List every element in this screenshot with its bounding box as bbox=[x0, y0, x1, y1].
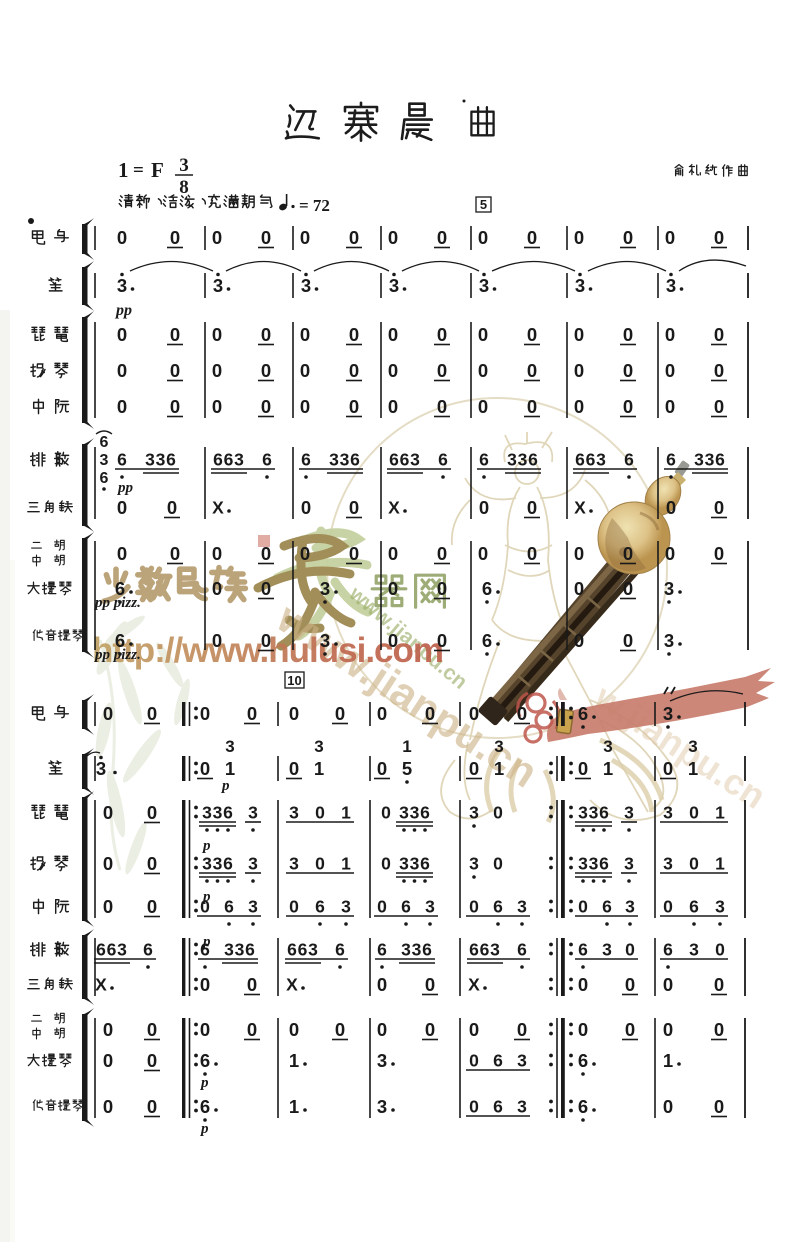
svg-text:1: 1 bbox=[225, 758, 235, 779]
svg-text:0: 0 bbox=[349, 543, 359, 564]
svg-text:0: 0 bbox=[437, 630, 447, 651]
svg-text:6: 6 bbox=[599, 853, 609, 873]
svg-text:6: 6 bbox=[575, 449, 585, 469]
svg-text:0: 0 bbox=[623, 360, 633, 381]
svg-text:0: 0 bbox=[300, 543, 310, 564]
svg-text:3: 3 bbox=[213, 802, 223, 822]
svg-text:6: 6 bbox=[479, 449, 489, 469]
svg-text:6: 6 bbox=[689, 896, 699, 916]
svg-text:6: 6 bbox=[213, 449, 223, 469]
svg-text:0: 0 bbox=[300, 227, 310, 248]
svg-text:3: 3 bbox=[377, 1050, 387, 1071]
svg-text:0: 0 bbox=[117, 497, 127, 518]
svg-text:0: 0 bbox=[574, 396, 584, 417]
svg-text:3: 3 bbox=[469, 853, 479, 873]
svg-text:0: 0 bbox=[147, 853, 157, 874]
svg-text:0: 0 bbox=[117, 396, 127, 417]
svg-text:3: 3 bbox=[664, 578, 674, 599]
svg-text:3: 3 bbox=[578, 802, 588, 822]
svg-text:3: 3 bbox=[248, 853, 258, 873]
svg-text:3: 3 bbox=[603, 737, 612, 756]
svg-text:6: 6 bbox=[517, 939, 527, 959]
svg-text:0: 0 bbox=[425, 703, 435, 724]
svg-text:8: 8 bbox=[179, 177, 189, 198]
svg-text:0: 0 bbox=[261, 630, 271, 651]
svg-text:0: 0 bbox=[261, 578, 271, 599]
svg-text:0: 0 bbox=[103, 1096, 113, 1117]
svg-text:3: 3 bbox=[96, 758, 106, 779]
svg-text:3: 3 bbox=[469, 802, 479, 822]
svg-text:3: 3 bbox=[301, 275, 311, 296]
svg-text:0: 0 bbox=[349, 227, 359, 248]
svg-text:3: 3 bbox=[341, 896, 351, 916]
svg-text:0: 0 bbox=[437, 578, 447, 599]
svg-text:F: F bbox=[151, 158, 164, 182]
svg-text:3: 3 bbox=[624, 853, 634, 873]
svg-text:3: 3 bbox=[517, 1096, 527, 1116]
svg-text:3: 3 bbox=[329, 449, 339, 469]
svg-text:0: 0 bbox=[623, 630, 633, 651]
svg-text:0: 0 bbox=[665, 324, 675, 345]
svg-text:6: 6 bbox=[335, 939, 345, 959]
svg-text:0: 0 bbox=[388, 324, 398, 345]
svg-text:6: 6 bbox=[377, 939, 387, 959]
svg-text:3: 3 bbox=[575, 275, 585, 296]
svg-text:X: X bbox=[95, 974, 107, 994]
svg-text:X: X bbox=[212, 497, 224, 517]
svg-text:6: 6 bbox=[666, 449, 676, 469]
svg-text:0: 0 bbox=[663, 896, 673, 916]
svg-text:3: 3 bbox=[117, 275, 127, 296]
svg-text:1: 1 bbox=[118, 158, 129, 182]
svg-text:3: 3 bbox=[202, 853, 212, 873]
svg-text:0: 0 bbox=[289, 758, 299, 779]
svg-text:0: 0 bbox=[200, 758, 210, 779]
svg-text:0: 0 bbox=[623, 396, 633, 417]
svg-text:0: 0 bbox=[103, 802, 113, 823]
svg-text:3: 3 bbox=[688, 737, 697, 756]
svg-text:3: 3 bbox=[624, 802, 634, 822]
svg-text:0: 0 bbox=[689, 802, 699, 822]
svg-text:3: 3 bbox=[596, 449, 606, 469]
svg-text:X: X bbox=[468, 974, 480, 994]
svg-text:0: 0 bbox=[212, 227, 222, 248]
svg-text:6: 6 bbox=[200, 1050, 210, 1071]
svg-text:6: 6 bbox=[663, 939, 673, 959]
svg-text:6: 6 bbox=[100, 434, 109, 451]
svg-text:0: 0 bbox=[714, 1019, 724, 1040]
svg-text:0: 0 bbox=[625, 939, 635, 959]
svg-text:0: 0 bbox=[663, 974, 673, 995]
svg-text:6: 6 bbox=[298, 939, 308, 959]
svg-text:6: 6 bbox=[262, 449, 272, 469]
svg-text:3: 3 bbox=[100, 452, 109, 469]
svg-text:0: 0 bbox=[103, 896, 113, 917]
svg-text:1: 1 bbox=[663, 1050, 673, 1071]
svg-text:6: 6 bbox=[578, 939, 588, 959]
svg-text:0: 0 bbox=[147, 1019, 157, 1040]
svg-text:0: 0 bbox=[377, 896, 387, 916]
svg-text:0: 0 bbox=[289, 896, 299, 916]
svg-text:0: 0 bbox=[527, 227, 537, 248]
svg-text:0: 0 bbox=[212, 360, 222, 381]
svg-text:0: 0 bbox=[377, 703, 387, 724]
svg-text:0: 0 bbox=[527, 543, 537, 564]
svg-text:0: 0 bbox=[335, 1019, 345, 1040]
svg-text:0: 0 bbox=[170, 227, 180, 248]
svg-text:3: 3 bbox=[689, 939, 699, 959]
svg-text:= 72: = 72 bbox=[299, 196, 330, 215]
svg-text:X: X bbox=[286, 974, 298, 994]
svg-text:3: 3 bbox=[517, 896, 527, 916]
svg-text:0: 0 bbox=[212, 543, 222, 564]
svg-text:0: 0 bbox=[574, 360, 584, 381]
svg-text:0: 0 bbox=[147, 703, 157, 724]
svg-text:0: 0 bbox=[388, 396, 398, 417]
svg-text:0: 0 bbox=[469, 703, 479, 724]
svg-text:0: 0 bbox=[377, 974, 387, 995]
svg-text:3: 3 bbox=[490, 939, 500, 959]
svg-text:6: 6 bbox=[420, 853, 430, 873]
svg-text:0: 0 bbox=[469, 1019, 479, 1040]
svg-text:0: 0 bbox=[469, 896, 479, 916]
svg-text:3: 3 bbox=[213, 853, 223, 873]
svg-text:0: 0 bbox=[714, 974, 724, 995]
svg-text:0: 0 bbox=[437, 227, 447, 248]
svg-text:3: 3 bbox=[410, 853, 420, 873]
svg-text:6: 6 bbox=[245, 939, 255, 959]
svg-text:0: 0 bbox=[212, 630, 222, 651]
svg-text:6: 6 bbox=[166, 449, 176, 469]
svg-text:3: 3 bbox=[235, 939, 245, 959]
svg-text:0: 0 bbox=[315, 853, 325, 873]
svg-text:0: 0 bbox=[117, 227, 127, 248]
svg-text:1: 1 bbox=[341, 802, 351, 822]
svg-text:3: 3 bbox=[412, 939, 422, 959]
svg-text:6: 6 bbox=[107, 939, 117, 959]
svg-text:0: 0 bbox=[469, 758, 479, 779]
svg-text:0: 0 bbox=[377, 758, 387, 779]
svg-text:3: 3 bbox=[314, 737, 323, 756]
svg-text:3: 3 bbox=[225, 737, 234, 756]
svg-text:3: 3 bbox=[664, 630, 674, 651]
svg-text:6: 6 bbox=[401, 896, 411, 916]
svg-text:0: 0 bbox=[381, 853, 391, 873]
svg-text:0: 0 bbox=[714, 324, 724, 345]
svg-text:0: 0 bbox=[425, 974, 435, 995]
svg-text:6: 6 bbox=[420, 802, 430, 822]
svg-text:X: X bbox=[388, 497, 400, 517]
svg-text:0: 0 bbox=[212, 324, 222, 345]
svg-text:0: 0 bbox=[663, 1019, 673, 1040]
svg-text:0: 0 bbox=[170, 543, 180, 564]
svg-text:0: 0 bbox=[665, 360, 675, 381]
svg-text:0: 0 bbox=[300, 396, 310, 417]
svg-text:pp pizz.: pp pizz. bbox=[93, 647, 141, 663]
svg-text:1: 1 bbox=[341, 853, 351, 873]
svg-text:6: 6 bbox=[578, 1050, 588, 1071]
svg-text:0: 0 bbox=[247, 974, 257, 995]
svg-text:0: 0 bbox=[469, 1096, 479, 1116]
svg-text:6: 6 bbox=[586, 449, 596, 469]
svg-text:0: 0 bbox=[170, 324, 180, 345]
svg-text:0: 0 bbox=[117, 360, 127, 381]
svg-text:6: 6 bbox=[578, 1096, 588, 1117]
svg-text:0: 0 bbox=[377, 1019, 387, 1040]
svg-text:6: 6 bbox=[469, 939, 479, 959]
svg-text:3: 3 bbox=[320, 630, 330, 651]
svg-text:0: 0 bbox=[578, 1019, 588, 1040]
svg-text:0: 0 bbox=[623, 324, 633, 345]
svg-text:0: 0 bbox=[478, 227, 488, 248]
svg-text:0: 0 bbox=[625, 974, 635, 995]
svg-text:0: 0 bbox=[689, 853, 699, 873]
svg-text:0: 0 bbox=[663, 1096, 673, 1117]
svg-text:6: 6 bbox=[315, 896, 325, 916]
svg-text:6: 6 bbox=[438, 449, 448, 469]
svg-text:0: 0 bbox=[574, 227, 584, 248]
svg-text:0: 0 bbox=[478, 396, 488, 417]
svg-text:6: 6 bbox=[599, 802, 609, 822]
svg-text:0: 0 bbox=[574, 630, 584, 651]
svg-text:p: p bbox=[201, 838, 211, 854]
svg-text:6: 6 bbox=[117, 449, 127, 469]
svg-text:6: 6 bbox=[200, 939, 210, 959]
svg-text:0: 0 bbox=[261, 543, 271, 564]
svg-text:6: 6 bbox=[143, 939, 153, 959]
svg-text:0: 0 bbox=[666, 497, 676, 518]
svg-text:0: 0 bbox=[665, 543, 675, 564]
svg-text:6: 6 bbox=[480, 939, 490, 959]
svg-text:0: 0 bbox=[261, 324, 271, 345]
svg-text:6: 6 bbox=[389, 449, 399, 469]
svg-text:3: 3 bbox=[389, 275, 399, 296]
svg-text:0: 0 bbox=[388, 227, 398, 248]
svg-text:0: 0 bbox=[200, 703, 210, 724]
svg-text:0: 0 bbox=[117, 324, 127, 345]
svg-text:0: 0 bbox=[388, 630, 398, 651]
svg-text:0: 0 bbox=[300, 360, 310, 381]
svg-text:6: 6 bbox=[715, 449, 725, 469]
svg-text:3: 3 bbox=[248, 802, 258, 822]
svg-text:0: 0 bbox=[103, 703, 113, 724]
svg-text:0: 0 bbox=[714, 360, 724, 381]
svg-text:1: 1 bbox=[402, 737, 411, 756]
svg-text:3: 3 bbox=[248, 896, 258, 916]
svg-text:0: 0 bbox=[335, 703, 345, 724]
svg-text:0: 0 bbox=[425, 1019, 435, 1040]
svg-text:p: p bbox=[199, 1121, 209, 1137]
svg-text:0: 0 bbox=[478, 543, 488, 564]
svg-text:0: 0 bbox=[200, 974, 210, 995]
svg-text:0: 0 bbox=[623, 578, 633, 599]
svg-text:0: 0 bbox=[349, 497, 359, 518]
svg-text:0: 0 bbox=[103, 1050, 113, 1071]
svg-text:3: 3 bbox=[213, 275, 223, 296]
svg-text:0: 0 bbox=[349, 360, 359, 381]
svg-text:1: 1 bbox=[289, 1050, 299, 1071]
svg-text:3: 3 bbox=[289, 853, 299, 873]
svg-text:1: 1 bbox=[289, 1096, 299, 1117]
svg-text:pp: pp bbox=[114, 302, 132, 319]
svg-text:0: 0 bbox=[714, 396, 724, 417]
svg-text:0: 0 bbox=[247, 703, 257, 724]
svg-text:0: 0 bbox=[147, 896, 157, 917]
svg-text:10: 10 bbox=[287, 673, 301, 688]
svg-text:0: 0 bbox=[349, 396, 359, 417]
svg-text:3: 3 bbox=[399, 853, 409, 873]
svg-text:3: 3 bbox=[479, 275, 489, 296]
svg-text:3: 3 bbox=[507, 449, 517, 469]
svg-text:3: 3 bbox=[308, 939, 318, 959]
svg-text:0: 0 bbox=[261, 227, 271, 248]
svg-text:0: 0 bbox=[289, 703, 299, 724]
svg-text:3: 3 bbox=[663, 703, 673, 724]
svg-text:6: 6 bbox=[96, 939, 106, 959]
svg-text:0: 0 bbox=[261, 396, 271, 417]
svg-text:3: 3 bbox=[578, 853, 588, 873]
svg-text:3: 3 bbox=[377, 1096, 387, 1117]
svg-text:6: 6 bbox=[602, 896, 612, 916]
svg-text:0: 0 bbox=[574, 543, 584, 564]
svg-text:3: 3 bbox=[715, 896, 725, 916]
svg-text:0: 0 bbox=[517, 1019, 527, 1040]
svg-text:p: p bbox=[199, 1075, 209, 1091]
svg-text:3: 3 bbox=[410, 802, 420, 822]
svg-text:0: 0 bbox=[714, 227, 724, 248]
svg-text:X: X bbox=[574, 497, 586, 517]
svg-text:6: 6 bbox=[624, 449, 634, 469]
svg-text:0: 0 bbox=[527, 497, 537, 518]
svg-text:0: 0 bbox=[170, 360, 180, 381]
svg-text:0: 0 bbox=[714, 543, 724, 564]
svg-text:3: 3 bbox=[589, 802, 599, 822]
svg-text:0: 0 bbox=[200, 896, 210, 916]
svg-text:3: 3 bbox=[202, 802, 212, 822]
svg-text:0: 0 bbox=[437, 543, 447, 564]
svg-text:=: = bbox=[133, 160, 144, 181]
svg-text:3: 3 bbox=[399, 802, 409, 822]
svg-text:0: 0 bbox=[103, 1019, 113, 1040]
svg-text:0: 0 bbox=[715, 939, 725, 959]
svg-text:3: 3 bbox=[145, 449, 155, 469]
svg-text:0: 0 bbox=[714, 1096, 724, 1117]
svg-text:3: 3 bbox=[602, 939, 612, 959]
svg-text:1: 1 bbox=[688, 758, 698, 779]
svg-text:0: 0 bbox=[388, 543, 398, 564]
svg-text:6: 6 bbox=[223, 853, 233, 873]
svg-text:0: 0 bbox=[623, 543, 633, 564]
svg-text:0: 0 bbox=[388, 578, 398, 599]
svg-text:3: 3 bbox=[234, 449, 244, 469]
svg-text:0: 0 bbox=[574, 324, 584, 345]
svg-text:pp: pp bbox=[116, 480, 134, 496]
svg-text:0: 0 bbox=[623, 227, 633, 248]
svg-text:0: 0 bbox=[289, 1019, 299, 1040]
svg-text:6: 6 bbox=[200, 1096, 210, 1117]
svg-text:0: 0 bbox=[167, 497, 177, 518]
svg-text:0: 0 bbox=[170, 396, 180, 417]
svg-text:3: 3 bbox=[694, 449, 704, 469]
svg-text:3: 3 bbox=[340, 449, 350, 469]
svg-text:6: 6 bbox=[301, 449, 311, 469]
svg-text:0: 0 bbox=[479, 497, 489, 518]
svg-text:0: 0 bbox=[437, 360, 447, 381]
svg-text:6: 6 bbox=[493, 1050, 503, 1070]
svg-text:3: 3 bbox=[320, 578, 330, 599]
svg-text:0: 0 bbox=[527, 324, 537, 345]
svg-text:0: 0 bbox=[315, 802, 325, 822]
svg-text:0: 0 bbox=[527, 396, 537, 417]
svg-text:3: 3 bbox=[224, 939, 234, 959]
svg-text:p: p bbox=[220, 778, 230, 794]
svg-text:0: 0 bbox=[578, 758, 588, 779]
svg-text:6: 6 bbox=[493, 1096, 503, 1116]
svg-text:0: 0 bbox=[478, 360, 488, 381]
svg-text:6: 6 bbox=[287, 939, 297, 959]
svg-text:5: 5 bbox=[402, 758, 412, 779]
svg-text:3: 3 bbox=[117, 939, 127, 959]
svg-text:0: 0 bbox=[212, 396, 222, 417]
svg-text:0: 0 bbox=[578, 896, 588, 916]
svg-text:3: 3 bbox=[179, 155, 189, 176]
svg-text:3: 3 bbox=[425, 896, 435, 916]
svg-text:6: 6 bbox=[224, 449, 234, 469]
svg-text:6: 6 bbox=[100, 470, 109, 487]
svg-text:3: 3 bbox=[410, 449, 420, 469]
svg-text:6: 6 bbox=[223, 802, 233, 822]
svg-text:6: 6 bbox=[578, 703, 588, 724]
svg-text:0: 0 bbox=[437, 324, 447, 345]
svg-text:3: 3 bbox=[705, 449, 715, 469]
svg-text:0: 0 bbox=[261, 360, 271, 381]
svg-text:3: 3 bbox=[518, 449, 528, 469]
svg-text:0: 0 bbox=[493, 802, 503, 822]
svg-text:6: 6 bbox=[493, 896, 503, 916]
svg-text:3: 3 bbox=[401, 939, 411, 959]
svg-text:0: 0 bbox=[574, 578, 584, 599]
svg-text:0: 0 bbox=[212, 578, 222, 599]
svg-text:3: 3 bbox=[663, 853, 673, 873]
svg-text:0: 0 bbox=[103, 853, 113, 874]
svg-text:3: 3 bbox=[494, 737, 503, 756]
svg-text:1: 1 bbox=[314, 758, 324, 779]
svg-text:0: 0 bbox=[469, 1050, 479, 1070]
svg-text:3: 3 bbox=[517, 1050, 527, 1070]
svg-text:0: 0 bbox=[117, 543, 127, 564]
svg-text:0: 0 bbox=[527, 360, 537, 381]
svg-text:0: 0 bbox=[147, 1096, 157, 1117]
svg-text:0: 0 bbox=[578, 974, 588, 995]
svg-text:3: 3 bbox=[666, 275, 676, 296]
svg-text:3: 3 bbox=[663, 802, 673, 822]
svg-text:0: 0 bbox=[478, 324, 488, 345]
svg-text:pp pizz.: pp pizz. bbox=[93, 595, 141, 611]
svg-text:5: 5 bbox=[480, 197, 487, 212]
svg-text:0: 0 bbox=[663, 758, 673, 779]
svg-text:0: 0 bbox=[665, 396, 675, 417]
svg-text:6: 6 bbox=[482, 578, 492, 599]
svg-text:6: 6 bbox=[528, 449, 538, 469]
svg-text:0: 0 bbox=[301, 497, 311, 518]
svg-text:3: 3 bbox=[289, 802, 299, 822]
svg-text:0: 0 bbox=[381, 802, 391, 822]
svg-text:0: 0 bbox=[300, 324, 310, 345]
svg-text:1: 1 bbox=[715, 853, 725, 873]
svg-text:3: 3 bbox=[589, 853, 599, 873]
svg-text:3: 3 bbox=[625, 896, 635, 916]
svg-text:3: 3 bbox=[156, 449, 166, 469]
